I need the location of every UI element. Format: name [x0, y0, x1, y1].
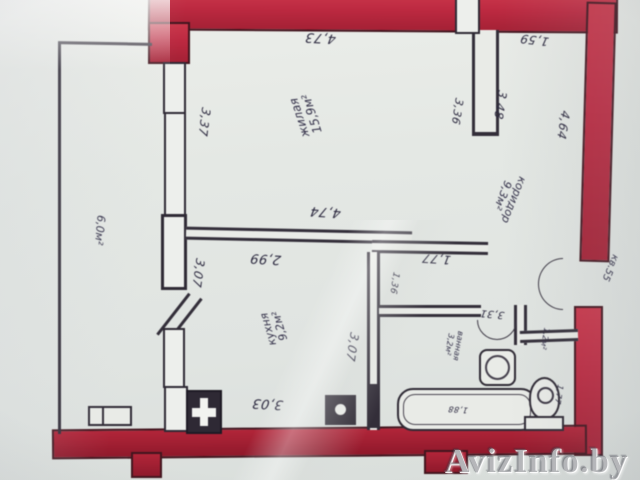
floor-plan-photo: жилая 15,9м² коридор 9,3м² кухня 9,2м² 6… [0, 0, 640, 480]
stove-cross [192, 408, 216, 417]
balcony-left-line [58, 42, 61, 434]
washbasin-icon [479, 349, 516, 386]
dimension-kitchen-left: 3,07 [190, 257, 208, 289]
balcony-top-line [58, 41, 152, 46]
room-label-living: жилая 15,9м² [287, 92, 325, 139]
dimension-living-left: 3,37 [196, 106, 213, 138]
bathroom-door-arc [477, 300, 517, 340]
wall-right-upper [579, 2, 616, 263]
dimension-wc-side: 1,77 [553, 384, 565, 406]
dimension-living-top: 4,73 [304, 29, 337, 46]
wall-bottom-stub-left [131, 452, 162, 478]
dimension-hall-top: 1,77 [421, 251, 452, 267]
entrance-door-arc [538, 258, 588, 310]
dimension-closet-top: 1,59 [519, 31, 551, 48]
wall-top-corner-pillar [148, 22, 190, 64]
dimension-corridor-right: 4,64 [554, 109, 572, 141]
dimension-bathroom-top: 3,31 [479, 307, 505, 320]
closet-partition [472, 30, 499, 136]
room-label-corridor: коридор 9,3м² [487, 170, 528, 224]
room-label-kitchen: кухня 9,2м² [258, 308, 291, 347]
watermark: AvizInfo.by [444, 441, 628, 480]
dimension-kitchen-top: 2,99 [249, 250, 282, 267]
washbasin-bowl [485, 355, 510, 380]
kitchen-bathroom-wall-solid [369, 384, 378, 428]
balcony-bench-icon [88, 406, 132, 426]
dimension-living-right: 3,36 [449, 97, 466, 127]
dimension-living-bottom: 4,74 [309, 203, 342, 220]
dimension-kitchen-right: 3,07 [343, 331, 361, 363]
living-window-icon [164, 112, 186, 216]
wall-top-opening [455, 0, 480, 34]
kitchen-window-icon [164, 386, 188, 432]
toilet-bowl [537, 387, 554, 404]
bathroom-top-wall [379, 305, 481, 317]
kitchen-window-icon [163, 328, 185, 388]
dimension-closet-side: 3,48 [491, 89, 509, 121]
dimension-bath-door: 1,36 [387, 271, 400, 295]
living-window-icon [163, 62, 186, 114]
balcony-door-icon [161, 214, 187, 290]
kitchen-sink-icon [325, 395, 356, 425]
room-area: 6,0м² [92, 215, 107, 246]
floor-plan-drawing: жилая 15,9м² коридор 9,3м² кухня 9,2м² 6… [0, 0, 640, 480]
toilet-tank [524, 416, 564, 431]
dimension-kitchen-bottom: 3,03 [251, 395, 284, 412]
wall-top [148, 0, 618, 34]
room-label-bathroom: ванная 3,2м² [441, 329, 464, 361]
room-label-balcony: 6,0м² [92, 215, 107, 246]
dimension-bathtub: 1,88 [447, 404, 468, 414]
stove-icon [186, 390, 222, 434]
bench-divider [102, 408, 104, 424]
sink-basin [335, 404, 346, 415]
